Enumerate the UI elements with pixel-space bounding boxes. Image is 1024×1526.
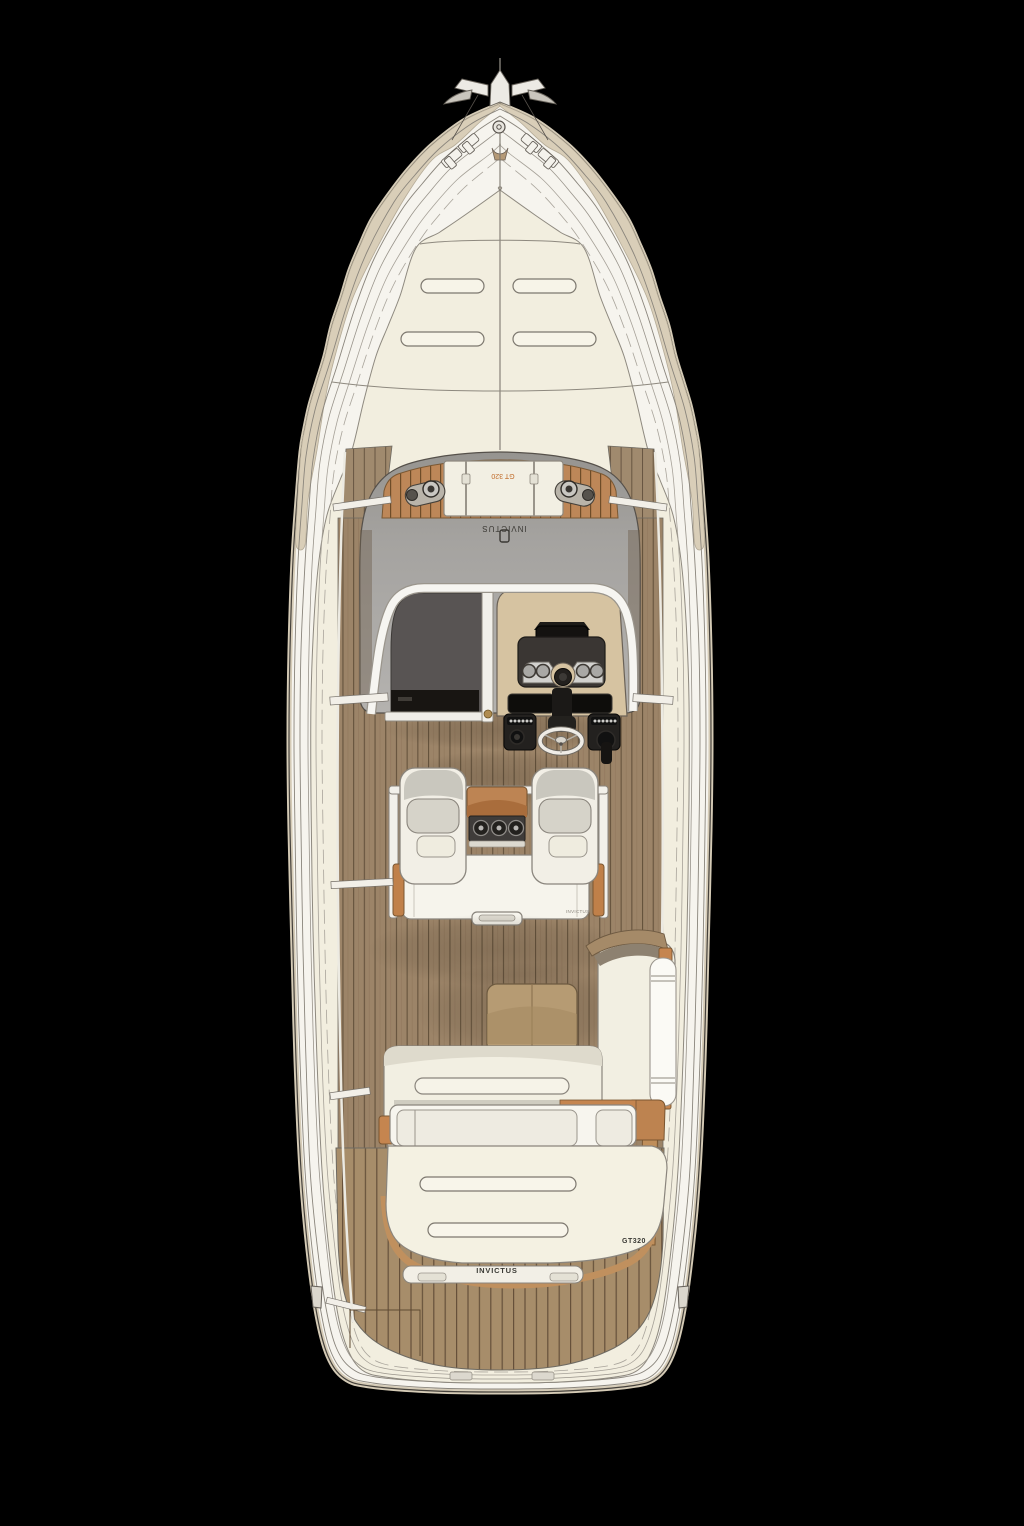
svg-text:GT320: GT320 <box>622 1238 646 1245</box>
svg-text:GT 320: GT 320 <box>491 472 514 479</box>
svg-text:INVICTUS: INVICTUS <box>566 909 589 914</box>
svg-text:INVICTUS: INVICTUS <box>481 524 526 533</box>
svg-text:INVICTUS: INVICTUS <box>476 1266 517 1275</box>
